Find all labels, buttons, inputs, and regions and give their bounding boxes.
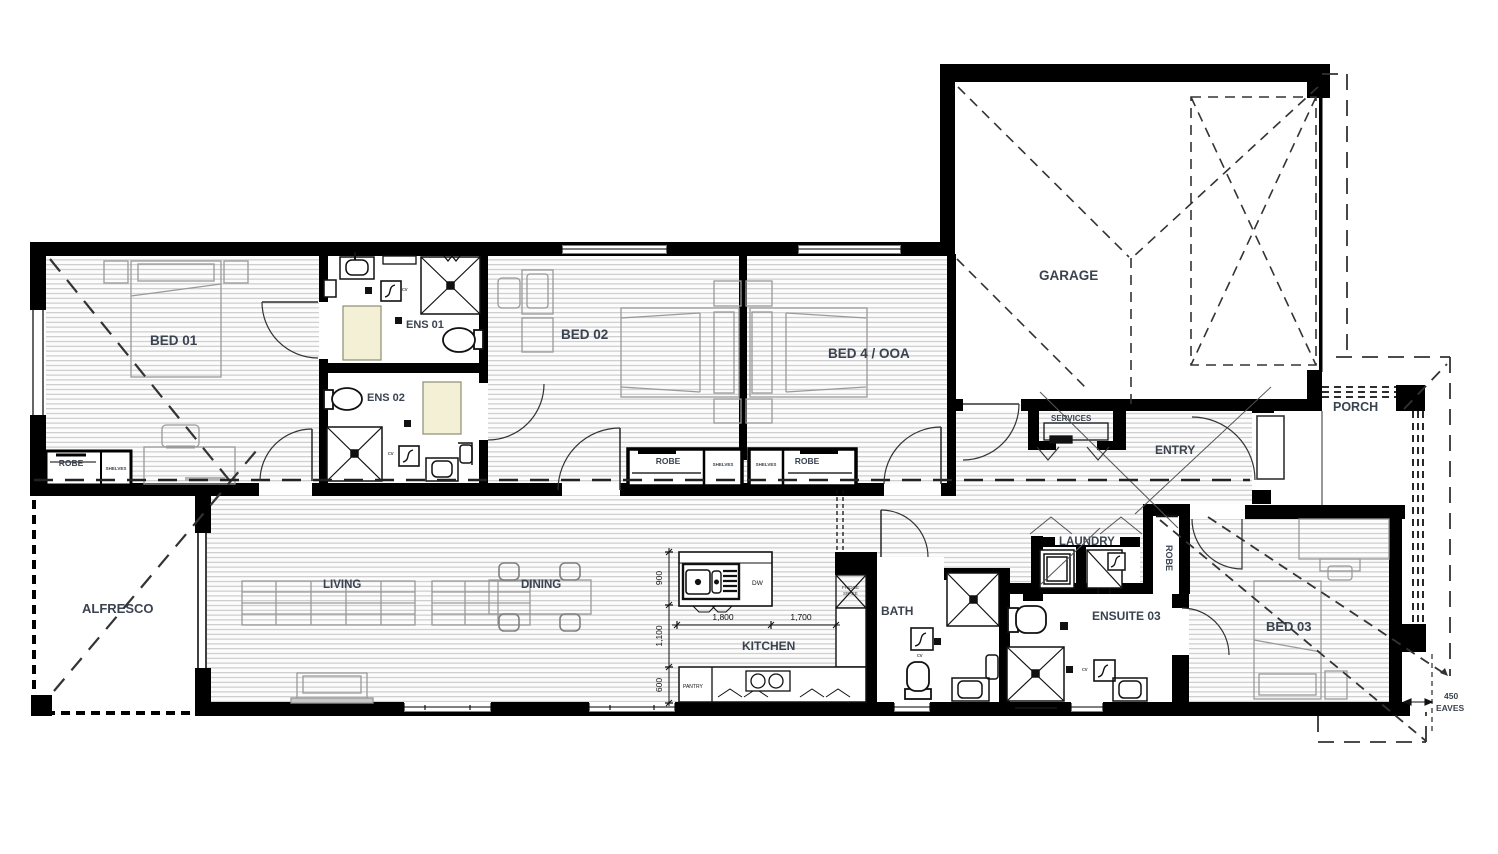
svg-text:ENS 02: ENS 02 <box>367 392 405 404</box>
svg-text:ROBE: ROBE <box>59 458 84 468</box>
svg-text:SHELVES: SHELVES <box>106 466 127 471</box>
svg-text:EAVES: EAVES <box>1436 703 1465 713</box>
svg-text:600: 600 <box>654 678 664 692</box>
svg-text:LIVING: LIVING <box>323 579 361 591</box>
svg-text:BATH: BATH <box>881 604 913 618</box>
svg-text:SHELVES: SHELVES <box>713 462 734 467</box>
svg-text:cv: cv <box>1082 667 1088 673</box>
svg-text:1,700: 1,700 <box>790 612 812 622</box>
svg-text:PORCH: PORCH <box>1333 400 1378 414</box>
svg-text:cv: cv <box>388 451 394 457</box>
svg-text:ALFRESCO: ALFRESCO <box>82 601 154 616</box>
svg-text:FRIDGE: FRIDGE <box>842 585 859 590</box>
svg-text:BED 4 / OOA: BED 4 / OOA <box>828 346 910 361</box>
svg-text:900: 900 <box>654 571 664 585</box>
svg-text:ROBE: ROBE <box>1164 545 1174 571</box>
svg-text:LAUNDRY: LAUNDRY <box>1059 536 1115 548</box>
svg-text:GARAGE: GARAGE <box>1039 268 1098 283</box>
svg-text:BED 01: BED 01 <box>150 333 198 348</box>
svg-text:ENSUITE 03: ENSUITE 03 <box>1092 609 1161 623</box>
svg-text:SPACE: SPACE <box>843 591 858 596</box>
svg-text:cv: cv <box>917 653 923 659</box>
svg-text:BED 02: BED 02 <box>561 327 608 342</box>
svg-text:ROBE: ROBE <box>795 456 820 466</box>
svg-text:BED 03: BED 03 <box>1266 619 1312 634</box>
svg-text:1,800: 1,800 <box>712 612 734 622</box>
svg-text:SHELVES: SHELVES <box>756 462 777 467</box>
svg-text:DW: DW <box>752 580 764 587</box>
svg-text:PANTRY: PANTRY <box>683 684 703 690</box>
svg-text:1,100: 1,100 <box>654 625 664 647</box>
svg-text:DINING: DINING <box>521 579 561 591</box>
svg-text:KITCHEN: KITCHEN <box>742 639 795 653</box>
svg-text:SERVICES: SERVICES <box>1051 414 1092 423</box>
svg-text:ENTRY: ENTRY <box>1155 443 1195 457</box>
svg-text:450: 450 <box>1444 691 1458 701</box>
svg-text:cv: cv <box>402 287 408 293</box>
svg-text:ENS 01: ENS 01 <box>406 319 444 331</box>
svg-text:ROBE: ROBE <box>656 456 681 466</box>
